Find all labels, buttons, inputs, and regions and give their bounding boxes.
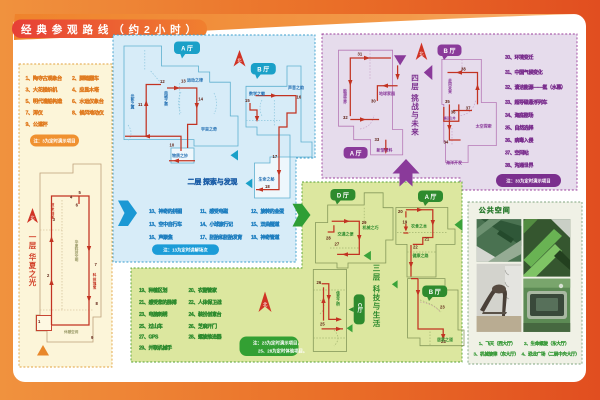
svg-text:20、农副管家: 20、农副管家 xyxy=(189,287,218,294)
svg-text:宇宙之奇: 宇宙之奇 xyxy=(201,126,217,132)
svg-text:电磁之奥: 电磁之奥 xyxy=(163,90,168,106)
svg-text:机械之巧: 机械之巧 xyxy=(363,224,379,230)
svg-text:14: 14 xyxy=(198,97,203,102)
svg-text:农食之本: 农食之本 xyxy=(410,223,427,229)
svg-text:20: 20 xyxy=(398,209,403,214)
svg-text:38、沟通世界: 38、沟通世界 xyxy=(505,162,534,169)
svg-text:能源世界: 能源世界 xyxy=(342,88,347,104)
svg-text:11、感受电磁: 11、感受电磁 xyxy=(200,208,228,215)
svg-text:35、自然选择: 35、自然选择 xyxy=(505,125,534,132)
svg-text:8、候风地动仪: 8、候风地动仪 xyxy=(72,109,105,117)
svg-text:35: 35 xyxy=(445,99,450,104)
svg-text:17、胚胎和胚胎发育: 17、胚胎和胚胎发育 xyxy=(200,234,242,241)
svg-text:31、中国气候变化: 31、中国气候变化 xyxy=(505,69,543,76)
svg-text:2、脚踏翻车: 2、脚踏翻车 xyxy=(72,74,99,82)
svg-text:30、环境变迁: 30、环境变迁 xyxy=(505,54,533,61)
svg-text:D 厅: D 厅 xyxy=(337,191,349,199)
svg-text:32: 32 xyxy=(343,115,348,120)
svg-text:2、生命螺旋（东大厅）: 2、生命螺旋（东大厅） xyxy=(524,340,569,347)
svg-text:海洋开发: 海洋开发 xyxy=(446,159,462,165)
svg-text:36: 36 xyxy=(451,110,456,115)
svg-text:18、神奇管道: 18、神奇管道 xyxy=(251,234,279,241)
svg-text:16、声聚焦: 16、声聚焦 xyxy=(149,234,173,241)
svg-text:科技瑰宝: 科技瑰宝 xyxy=(92,272,97,289)
svg-text:27、GPS: 27、GPS xyxy=(139,335,159,341)
svg-text:21: 21 xyxy=(425,237,430,242)
svg-text:三层 科技与生活: 三层 科技与生活 xyxy=(372,264,381,329)
svg-text:1、陶寺古观象台: 1、陶寺古观象台 xyxy=(26,74,63,82)
svg-text:25、过山车: 25、过山车 xyxy=(139,323,163,330)
svg-text:17: 17 xyxy=(273,154,278,159)
svg-text:数学之魅: 数学之魅 xyxy=(248,90,265,96)
svg-text:二层 探索与发现: 二层 探索与发现 xyxy=(188,177,238,186)
svg-text:10: 10 xyxy=(170,143,175,148)
svg-text:15: 15 xyxy=(245,98,250,103)
svg-text:北: 北 xyxy=(31,214,35,220)
svg-text:29、并联机械手: 29、并联机械手 xyxy=(139,345,172,352)
svg-text:注：23为定时演示项目，: 注：23为定时演示项目， xyxy=(253,340,302,347)
svg-text:18: 18 xyxy=(265,184,270,189)
svg-text:12: 12 xyxy=(160,79,165,84)
svg-text:A 厅: A 厅 xyxy=(350,149,362,157)
svg-text:33: 33 xyxy=(375,137,380,142)
svg-text:15、双曲隧道: 15、双曲隧道 xyxy=(251,221,279,228)
svg-text:注：33为定时演示项目: 注：33为定时演示项目 xyxy=(506,178,550,185)
svg-text:3、机械旋律（东大厅）: 3、机械旋律（东大厅） xyxy=(474,351,519,358)
svg-text:生命之秘: 生命之秘 xyxy=(259,176,275,182)
svg-text:26、芝麻开门: 26、芝麻开门 xyxy=(189,323,217,330)
svg-text:9、公道杯: 9、公道杯 xyxy=(26,120,49,128)
svg-text:13、空中自行车: 13、空中自行车 xyxy=(149,221,182,228)
svg-text:走向未来: 走向未来 xyxy=(447,78,452,94)
svg-text:B 厅: B 厅 xyxy=(257,66,269,74)
svg-text:注：3为定时演示项目: 注：3为定时演示项目 xyxy=(34,138,76,145)
svg-text:22、人体保卫战: 22、人体保卫战 xyxy=(189,299,222,306)
svg-text:24、装扮创意台: 24、装扮创意台 xyxy=(189,311,222,318)
svg-text:健康之路: 健康之路 xyxy=(413,252,429,258)
svg-text:37: 37 xyxy=(466,106,471,111)
svg-text:C厅: C厅 xyxy=(356,303,363,314)
svg-text:12、旋转的金蛋: 12、旋转的金蛋 xyxy=(251,208,285,215)
svg-text:休憩空间: 休憩空间 xyxy=(63,329,79,334)
svg-text:3、大花楼织机: 3、大花楼织机 xyxy=(26,86,59,94)
svg-text:6、水运仪象台: 6、水运仪象台 xyxy=(72,97,104,105)
svg-text:33、超导磁悬浮列车: 33、超导磁悬浮列车 xyxy=(505,99,547,106)
svg-text:B 厅: B 厅 xyxy=(443,47,455,55)
svg-text:36、病毒入侵: 36、病毒入侵 xyxy=(505,137,533,144)
svg-text:27: 27 xyxy=(335,242,340,247)
svg-text:28: 28 xyxy=(326,236,331,241)
svg-text:运动之律: 运动之律 xyxy=(187,77,203,83)
svg-text:信息之桥: 信息之桥 xyxy=(335,290,340,306)
svg-text:居家之道: 居家之道 xyxy=(437,336,453,342)
svg-text:四层 挑战与未来: 四层 挑战与未来 xyxy=(410,74,419,137)
svg-text:14、小球旅行记: 14、小球旅行记 xyxy=(200,221,233,228)
svg-text:25: 25 xyxy=(320,322,325,327)
svg-text:37、空间站: 37、空间站 xyxy=(505,150,529,157)
svg-text:地球家园: 地球家园 xyxy=(379,90,395,96)
svg-text:4、应县木塔: 4、应县木塔 xyxy=(72,86,100,94)
svg-text:13: 13 xyxy=(181,79,186,84)
svg-text:1、飞天（西大厅）: 1、飞天（西大厅） xyxy=(479,340,516,347)
svg-text:23、电脑刺绣: 23、电脑刺绣 xyxy=(139,311,168,318)
svg-text:32、清洁能源——氢（水幕）: 32、清洁能源——氢（水幕） xyxy=(505,84,566,91)
svg-text:28、螺旋推进器: 28、螺旋推进器 xyxy=(189,334,223,341)
svg-text:注：13为定时讲解场次: 注：13为定时讲解场次 xyxy=(163,247,208,254)
svg-text:B 厅: B 厅 xyxy=(429,288,441,296)
svg-text:22: 22 xyxy=(413,244,418,249)
svg-text:北: 北 xyxy=(263,301,268,308)
svg-text:4、恐龙广场（二层中央大厅）: 4、恐龙广场（二层中央大厅） xyxy=(522,351,580,358)
svg-text:技术创新: 技术创新 xyxy=(50,202,55,219)
svg-text:19、种植区划: 19、种植区划 xyxy=(139,287,167,294)
svg-text:华夏科技文明: 华夏科技文明 xyxy=(74,239,79,262)
svg-text:一层 华夏之光: 一层 华夏之光 xyxy=(28,233,37,287)
svg-text:基因生命: 基因生命 xyxy=(443,115,457,120)
svg-text:25、28为定时体验项目。: 25、28为定时体验项目。 xyxy=(258,348,307,355)
svg-text:11: 11 xyxy=(138,102,143,107)
svg-text:19: 19 xyxy=(403,220,408,225)
svg-text:26: 26 xyxy=(317,280,322,285)
svg-text:A 厅: A 厅 xyxy=(181,45,193,53)
svg-text:公共空间: 公共空间 xyxy=(479,206,510,215)
svg-text:38: 38 xyxy=(461,67,466,72)
svg-text:7、浑仪: 7、浑仪 xyxy=(26,109,44,117)
svg-text:A 厅: A 厅 xyxy=(425,193,437,201)
svg-text:30: 30 xyxy=(371,99,376,104)
svg-text:21、感受您的脉搏: 21、感受您的脉搏 xyxy=(139,299,177,306)
svg-text:声音之韵: 声音之韵 xyxy=(287,84,304,90)
svg-text:物质之妙: 物质之妙 xyxy=(172,152,188,158)
svg-text:31: 31 xyxy=(358,52,363,57)
svg-text:34、海底剧场: 34、海底剧场 xyxy=(505,112,533,119)
svg-text:16: 16 xyxy=(297,95,302,100)
svg-text:34: 34 xyxy=(444,140,449,145)
svg-text:光影之翼: 光影之翼 xyxy=(130,93,135,109)
svg-text:10、神奇的拼图: 10、神奇的拼图 xyxy=(149,208,182,215)
svg-text:23: 23 xyxy=(440,305,445,310)
svg-text:新型材料: 新型材料 xyxy=(377,147,393,153)
svg-text:5、明代漕船构造: 5、明代漕船构造 xyxy=(26,97,64,105)
svg-text:交通之便: 交通之便 xyxy=(338,231,355,237)
svg-text:太空探索: 太空探索 xyxy=(475,123,492,129)
